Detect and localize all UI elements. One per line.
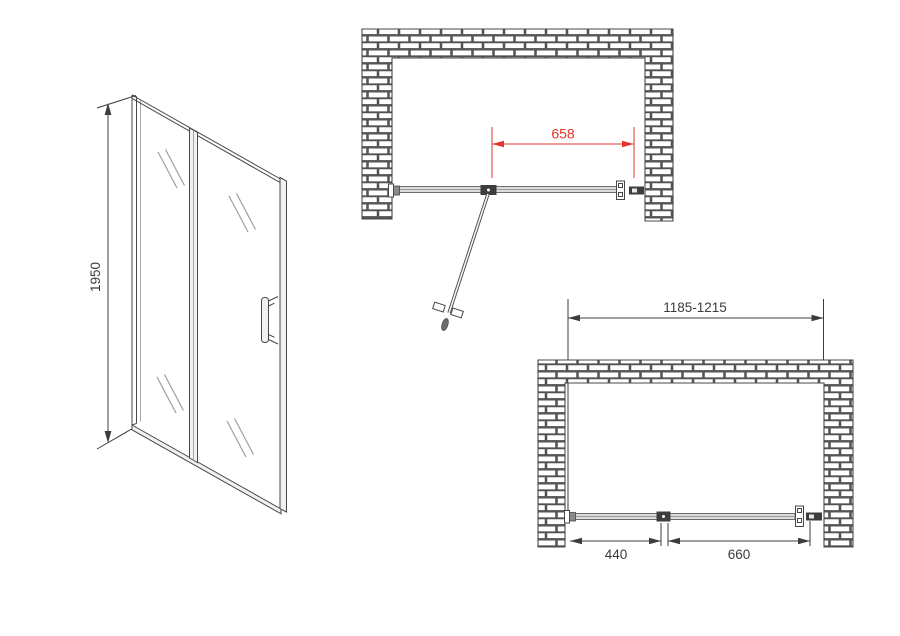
front-view: 1950: [88, 95, 287, 514]
wall-bracket-left-closed: [565, 511, 576, 524]
overall-width-dimension: 1185-1215: [568, 299, 824, 511]
technical-drawing: 1950: [0, 0, 900, 636]
height-dimension-label: 1950: [88, 262, 103, 292]
glass-reflection-marks: [157, 150, 256, 458]
plan-closed-view: 1185-1215 440: [538, 299, 853, 562]
open-door-leaf: [433, 194, 488, 331]
wall-bracket-right-closed: [806, 513, 822, 521]
door-opening-dimension: 658: [492, 126, 634, 179]
drawing-canvas: 1950: [0, 0, 900, 636]
pivot-hinge-closed: [657, 512, 671, 522]
plan-open-view: 658: [362, 29, 673, 331]
door-width-dimension: 660: [668, 521, 810, 562]
door-handle: [262, 297, 279, 345]
fixed-panel-dimension-label: 440: [605, 547, 628, 562]
fixed-panel-dimension: 440: [570, 523, 661, 562]
seal-profile-right: [617, 181, 625, 200]
height-dimension: 1950: [88, 96, 136, 450]
front-door-unit: [132, 95, 287, 514]
seal-profile-right-closed: [796, 506, 804, 527]
overall-width-dimension-label: 1185-1215: [663, 300, 727, 315]
pivot-hinge: [481, 185, 497, 195]
door-width-dimension-label: 660: [728, 547, 751, 562]
wall-bracket-right: [629, 187, 644, 195]
door-opening-dimension-label: 658: [551, 126, 575, 142]
open-door-handle: [433, 302, 464, 318]
wall-bracket-left: [389, 184, 400, 197]
